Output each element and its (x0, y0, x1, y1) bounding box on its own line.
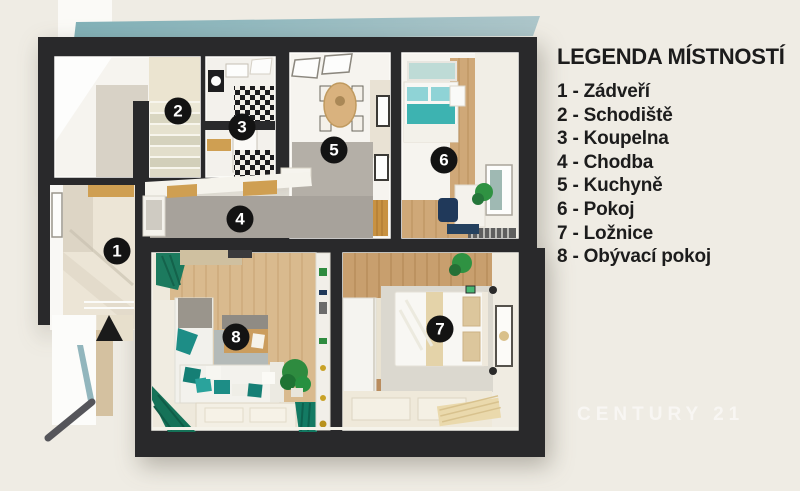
room-badge-5: 5 (321, 137, 348, 164)
room-6-room (402, 53, 518, 238)
legend-item-2: 2 - Schodiště (557, 104, 797, 128)
entrance-vestibule (48, 315, 133, 438)
legend-item-5: 5 - Kuchyně (557, 174, 797, 198)
room-badge-2: 2 (165, 98, 192, 125)
partition-shelf (316, 253, 330, 430)
legend-item-8: 8 - Obývací pokoj (557, 245, 797, 269)
floorplan-image: 1 2 3 4 5 6 7 8 LEGENDA MÍSTNOSTÍ 1 - Zá… (0, 0, 800, 491)
legend-item-1: 1 - Zádveří (557, 80, 797, 104)
room-badge-4: 4 (227, 206, 254, 233)
legend-item-4: 4 - Chodba (557, 151, 797, 175)
room-badge-6: 6 (431, 147, 458, 174)
legend-item-6: 6 - Pokoj (557, 198, 797, 222)
legend-item-3: 3 - Koupelna (557, 127, 797, 151)
legend: LEGENDA MÍSTNOSTÍ 1 - Zádveří 2 - Schodi… (557, 44, 797, 269)
inner-wall-edge (152, 427, 518, 430)
room-badge-8: 8 (223, 324, 250, 351)
room-badge-7: 7 (427, 316, 454, 343)
century21-watermark: CENTURY 21 (577, 404, 744, 426)
legend-title: LEGENDA MÍSTNOSTÍ (557, 44, 797, 70)
room-7-bedroom (343, 253, 518, 430)
room-badge-1: 1 (104, 238, 131, 265)
roof-band (74, 16, 540, 39)
legend-item-7: 7 - Ložnice (557, 222, 797, 246)
legend-list: 1 - Zádveří 2 - Schodiště 3 - Koupelna 4… (557, 80, 797, 269)
room-badge-3: 3 (229, 114, 256, 141)
